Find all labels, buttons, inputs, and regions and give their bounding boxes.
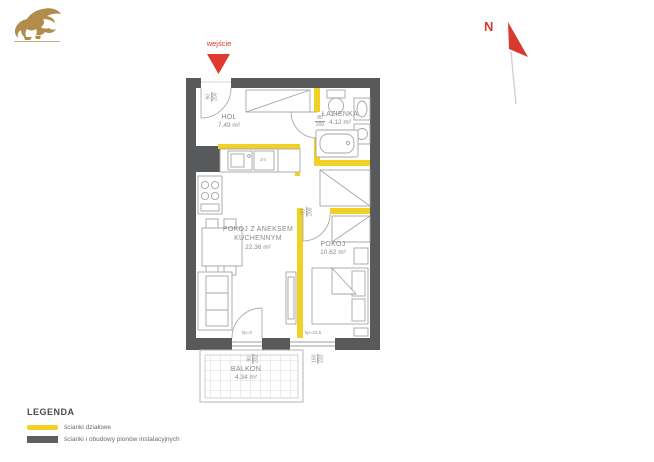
legend: LEGENDA ścianki działowe ścianki i obudo…: [27, 407, 180, 448]
entrance-label: wejście: [196, 39, 242, 48]
closet-niche: [320, 170, 370, 206]
stove-icon: [198, 176, 222, 214]
bedroom-door-dim: 80 200: [300, 202, 314, 222]
bedroom-wardrobe: [332, 216, 370, 242]
bathroom-door-dim: 80 200: [310, 115, 330, 129]
entrance-arrow-icon: [207, 54, 230, 74]
legend-item-shafts: ścianki i obudowy pionów instalacyjnych: [27, 436, 180, 443]
bathtub-icon: [316, 130, 358, 157]
room-label-hol: HOL 7.49 m²: [218, 113, 240, 131]
window-hp-label: hp=22,5: [296, 330, 330, 335]
balcony-door-hp-label: hp=0: [230, 330, 264, 335]
floorplan-page: { "entrance": { "label": "wejście", "doo…: [0, 0, 654, 462]
north-compass-icon: [508, 22, 528, 104]
window-dim: 160 232: [311, 349, 325, 369]
compass-n-label: N: [484, 19, 493, 34]
griffin-logo-icon: [10, 6, 64, 44]
partition-wall-swatch: [27, 425, 58, 430]
floorplan-drawing: [0, 0, 654, 462]
bed-icon: [312, 248, 368, 336]
sofa-icon: [198, 272, 232, 330]
hall-wardrobe: [246, 90, 310, 112]
balcony-door-dim: 90 232: [246, 349, 260, 369]
shaft-wall-swatch: [27, 436, 58, 443]
tv-stand-icon: [286, 272, 296, 324]
entrance-door-dim: 90 200: [205, 87, 219, 107]
legend-item-partitions: ścianki działowe: [27, 424, 180, 431]
legend-title: LEGENDA: [27, 407, 180, 417]
dishwasher-label: zm: [260, 157, 266, 162]
room-label-living: POKÓJ Z ANEKSEM KUCHENNYM 22.36 m²: [223, 225, 293, 252]
room-label-pokoj: POKÓJ 10.62 m²: [320, 240, 346, 258]
